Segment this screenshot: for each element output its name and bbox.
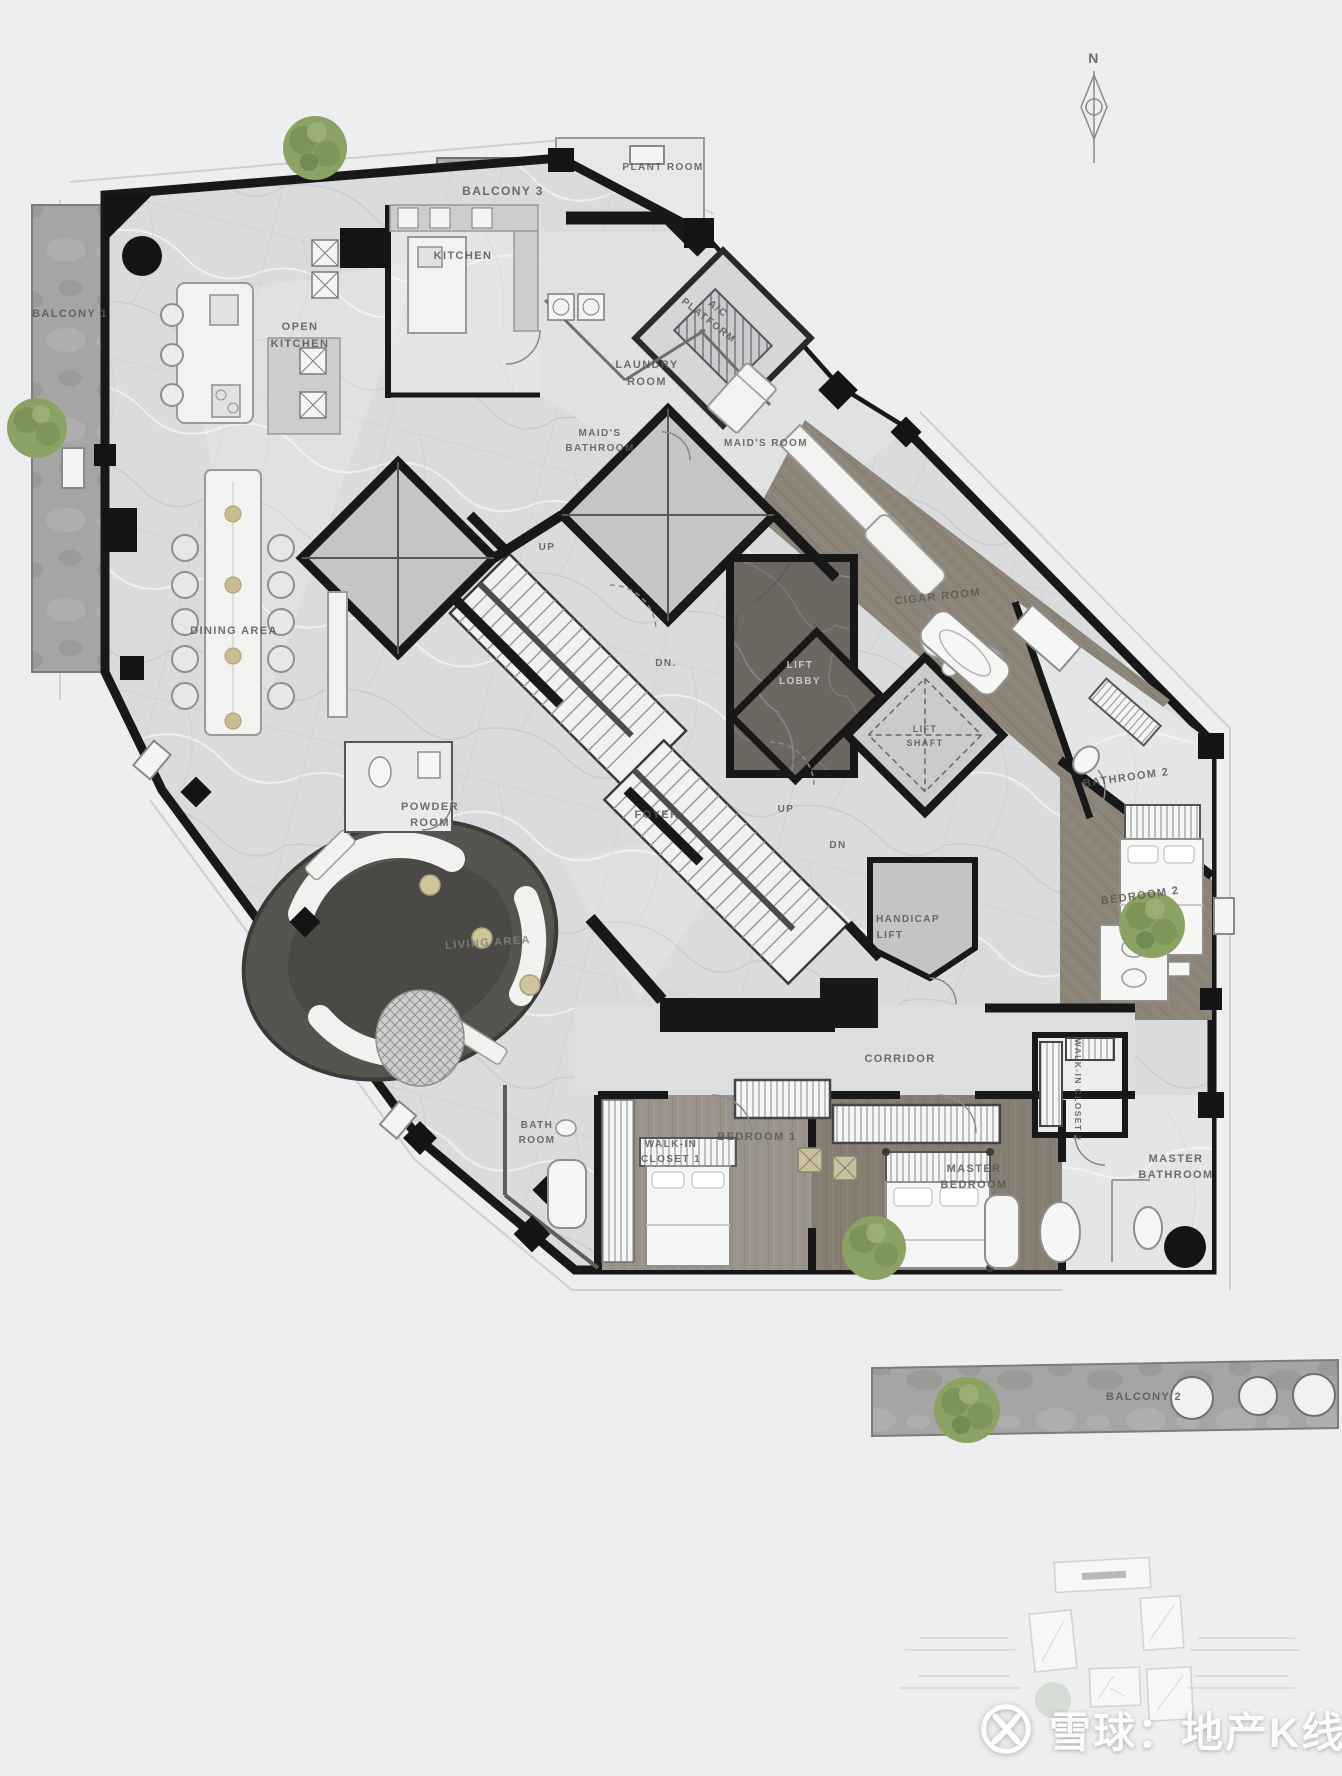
north-compass: N	[1081, 50, 1107, 163]
stair2-label-dn: DN	[829, 840, 846, 851]
room-label-master-bathroom-1: MASTER	[1149, 1153, 1204, 1165]
sink	[418, 752, 440, 778]
stair-label-dn: DN.	[655, 658, 676, 669]
room-label-handicap-lift-1: HANDICAP	[876, 914, 940, 925]
room-label-lift-lobby-1: LIFT	[787, 660, 814, 671]
headboard	[1125, 805, 1200, 839]
room-label-dining-area: DINING AREA	[190, 625, 278, 637]
stair2-label-up: UP	[778, 804, 795, 815]
compass-north-label: N	[1088, 50, 1100, 66]
side-table	[520, 975, 540, 995]
tree	[283, 116, 347, 180]
room-label-balcony-3: BALCONY 3	[462, 184, 544, 198]
side-table	[420, 875, 440, 895]
room-label-walkin-closet-1b: CLOSET 1	[641, 1154, 701, 1165]
room-label-maids-bathroom-1: MAID'S	[579, 428, 622, 439]
centerpiece	[225, 577, 241, 593]
fridge	[340, 228, 388, 268]
sink	[1134, 1207, 1162, 1249]
room-label-laundry-1: LAUNDRY	[615, 359, 678, 371]
centerpiece	[225, 506, 241, 522]
room-label-bath-room-1: BATH	[521, 1120, 554, 1131]
room-label-open-kitchen-2: KITCHEN	[271, 338, 330, 350]
floor-plan-drawing: PLANT ROOM BALCONY 3 KITCHEN BALCONY 1 O…	[0, 0, 1342, 1776]
room-label-open-kitchen-1: OPEN	[282, 321, 319, 333]
room-label-walkin-closet-2: WALK-IN CLOSET 2	[1073, 1039, 1083, 1142]
room-label-balcony-2: BALCONY 2	[1106, 1391, 1182, 1403]
floor-plan-page: PLANT ROOM BALCONY 3 KITCHEN BALCONY 1 O…	[0, 0, 1342, 1776]
room-label-maids-room: MAID'S ROOM	[724, 438, 808, 449]
tree	[934, 1377, 1000, 1443]
room-label-master-bedroom-2: BEDROOM	[940, 1179, 1007, 1191]
room-label-foyer: FOYER	[635, 809, 680, 821]
counter	[514, 231, 538, 331]
bathtub	[548, 1160, 586, 1228]
room-label-corridor: CORRIDOR	[864, 1053, 935, 1065]
key-plan	[900, 1558, 1300, 1722]
xueqiu-snowball-logo-icon	[975, 1698, 1037, 1760]
watermark: 雪球：地产K线	[975, 1698, 1342, 1760]
room-label-master-bedroom-1: MASTER	[947, 1163, 1002, 1175]
room-label-bedroom-1: BEDROOM 1	[717, 1131, 796, 1143]
room-label-master-bathroom-2: BATHROOM	[1138, 1169, 1213, 1181]
room-label-lift-shaft-2: SHAFT	[907, 738, 944, 748]
oval-tub	[1040, 1202, 1080, 1262]
room-label-kitchen: KITCHEN	[434, 250, 493, 262]
room-label-plant-room: PLANT ROOM	[622, 162, 703, 173]
room-label-walkin-closet-1a: WALK-IN	[645, 1139, 698, 1150]
tree	[842, 1216, 906, 1280]
sink	[556, 1120, 576, 1136]
room-label-handicap-lift-2: LIFT	[877, 930, 904, 941]
room-label-powder-room-2: ROOM	[410, 817, 450, 829]
centerpiece	[225, 648, 241, 664]
round-rug	[376, 990, 464, 1086]
stair-label-up: UP	[539, 542, 556, 553]
room-label-bath-room-2: ROOM	[519, 1135, 556, 1146]
room-label-balcony-1: BALCONY 1	[32, 308, 108, 320]
room-label-lift-shaft-1: LIFT	[913, 724, 938, 734]
room-label-maids-bathroom-2: BATHROOM	[565, 443, 634, 454]
closet-band	[602, 1100, 634, 1262]
room-label-laundry-2: ROOM	[627, 376, 667, 388]
bathtub	[985, 1195, 1019, 1268]
room-label-lift-lobby-2: LOBBY	[779, 676, 821, 687]
tree	[7, 398, 67, 458]
watermark-text: 雪球：地产K线	[1049, 1699, 1342, 1760]
room-label-powder-room-1: POWDER	[401, 801, 459, 813]
sideboard	[328, 592, 347, 717]
centerpiece	[225, 713, 241, 729]
toilet	[369, 757, 391, 787]
